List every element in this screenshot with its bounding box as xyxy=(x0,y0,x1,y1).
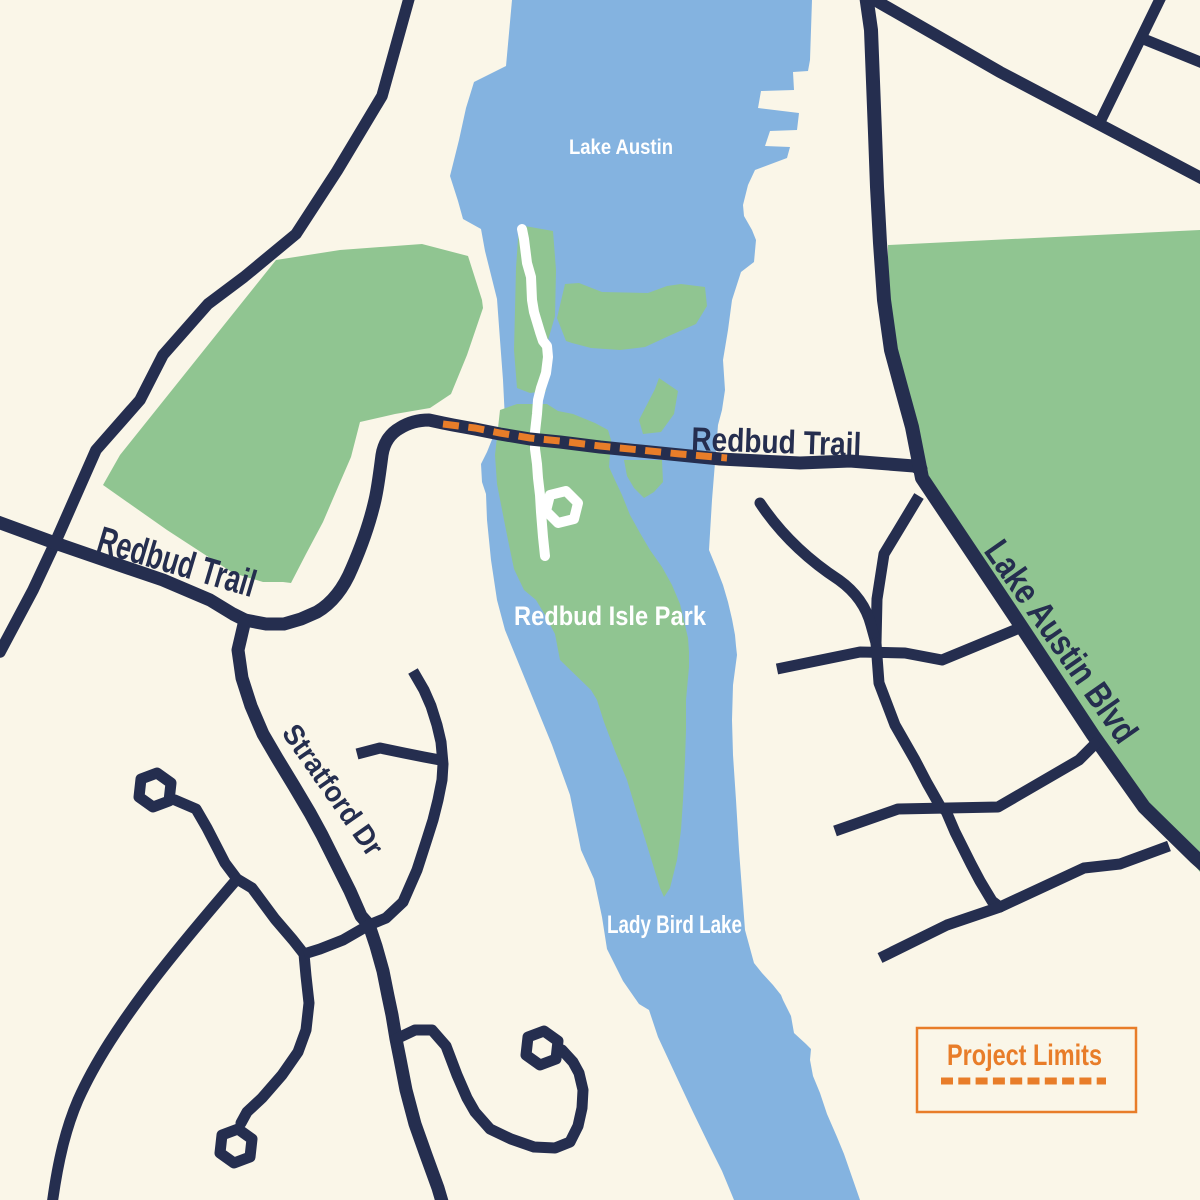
svg-text:Redbud Trail: Redbud Trail xyxy=(691,420,862,463)
svg-text:Lake Austin: Lake Austin xyxy=(569,136,673,159)
svg-text:Lady Bird Lake: Lady Bird Lake xyxy=(607,911,742,939)
svg-text:Redbud Isle Park: Redbud Isle Park xyxy=(514,601,707,631)
svg-text:Project Limits: Project Limits xyxy=(947,1039,1102,1072)
